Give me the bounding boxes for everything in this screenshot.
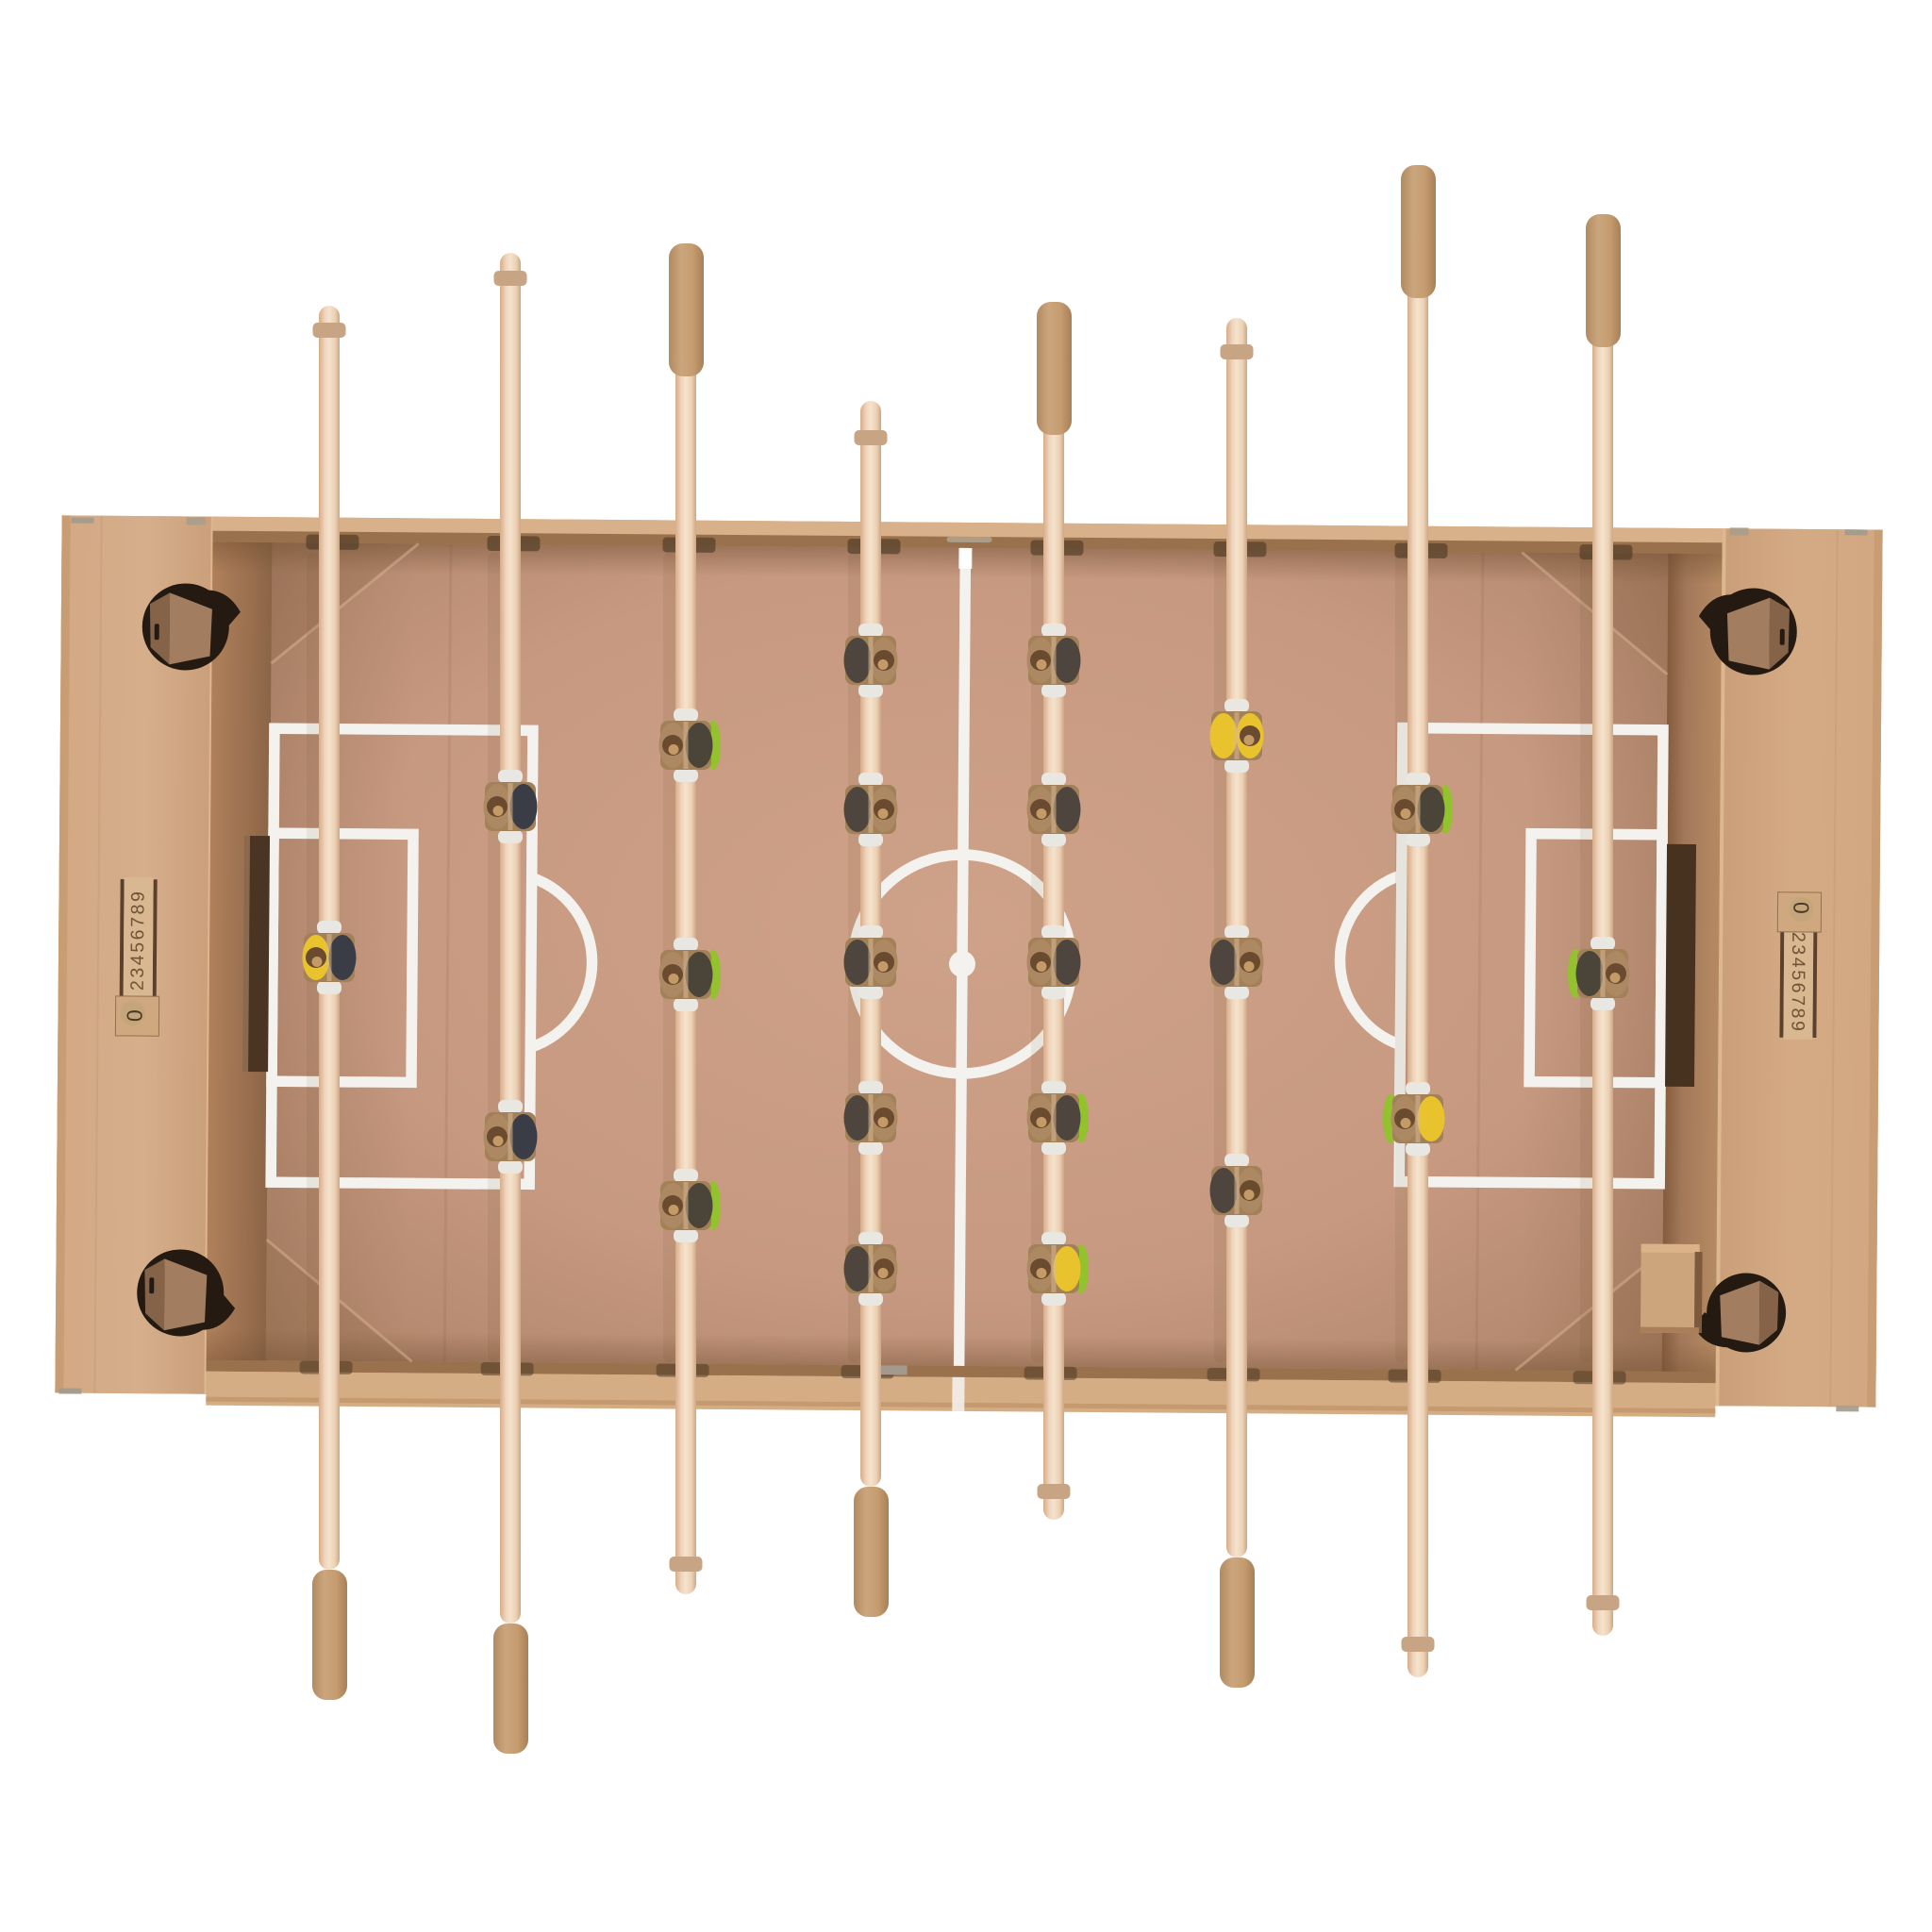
- svg-text:23456789: 23456789: [1787, 932, 1808, 1034]
- svg-text:0: 0: [1789, 902, 1813, 914]
- svg-text:0: 0: [122, 1009, 146, 1022]
- svg-text:23456789: 23456789: [127, 889, 149, 991]
